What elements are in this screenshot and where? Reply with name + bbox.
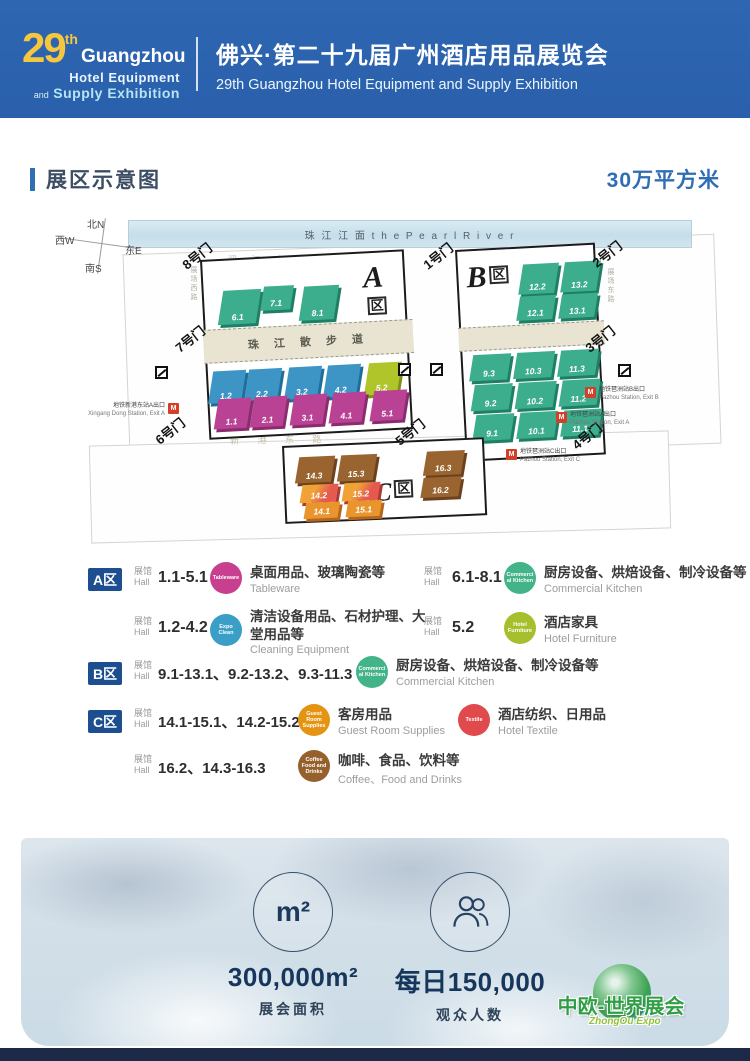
legend-zone-b-badge: B区 xyxy=(88,662,122,685)
hall-9.3: 9.3 xyxy=(469,353,511,381)
hall-10.1: 10.1 xyxy=(516,411,558,439)
hall-14.1: 14.1 xyxy=(304,502,341,520)
legend-category-zh: 桌面用品、玻璃陶瓷等 xyxy=(250,564,385,582)
hall-3.1: 3.1 xyxy=(290,394,328,426)
hall-16.3: 16.3 xyxy=(423,450,465,476)
section-accent-bar xyxy=(30,168,35,191)
expo-clean-icon: Expo Clean xyxy=(210,614,242,646)
legend-range-c2: 16.2、14.3-16.3 xyxy=(158,757,266,778)
hall-6.1: 6.1 xyxy=(218,289,261,325)
compass-south: 南S xyxy=(85,260,102,275)
escalator-icon xyxy=(618,364,631,377)
legend-zone-a-badge: A区 xyxy=(88,568,122,591)
escalator-icon xyxy=(430,363,443,376)
logo-line2: Hotel Equipment xyxy=(22,71,180,84)
hall-12.1: 12.1 xyxy=(516,295,556,321)
metro-icon: M xyxy=(168,403,179,414)
legend-category-en: Coffee、Food and Drinks xyxy=(338,771,462,787)
legend-category-zh: 酒店纺织、日用品 xyxy=(498,706,606,724)
hall-14.3: 14.3 xyxy=(295,456,335,484)
metro-exit-pazhou-c: M 地铁琶洲站C出口Pazhou Station, Exit C xyxy=(506,449,580,465)
hall-8.1: 8.1 xyxy=(299,285,339,321)
legend: A区 展馆Hall 1.1-5.1 Tableware 桌面用品、玻璃陶瓷等 T… xyxy=(0,556,750,808)
legend-range-a1b: 6.1-8.1 xyxy=(452,569,502,587)
logo-and: and xyxy=(34,90,49,100)
hall-9.2: 9.2 xyxy=(471,383,513,411)
logo-city: Guangzhou xyxy=(81,46,185,67)
section-header: 展区示意图 30万平方米 xyxy=(30,164,720,194)
hall-15.1: 15.1 xyxy=(345,500,382,518)
zone-c-block: C区 14.3 15.3 14.2 15.2 14.1 15.1 16.3 16… xyxy=(282,437,487,524)
legend-category-en: Guest Room Supplies xyxy=(338,725,445,737)
hotel-furniture-icon: Hotel Furniture xyxy=(504,612,536,644)
zone-a-block: A区 6.1 7.1 8.1 珠 江 散 步 道 1.2 2.2 3.2 4.2… xyxy=(200,249,413,439)
hall-label: 展馆Hall xyxy=(134,616,152,638)
road-complex-east: 展场东路 xyxy=(605,268,615,304)
header-divider xyxy=(196,37,198,91)
hall-label: 展馆Hall xyxy=(134,566,152,588)
commercial-kitchen-icon: Commercial Kitchen xyxy=(356,656,388,688)
coffee-food-drinks-icon: Coffee Food and Drinks xyxy=(298,750,330,782)
walkway-band-b xyxy=(458,320,605,352)
hall-label: 展馆Hall xyxy=(134,660,152,682)
hall-10.2: 10.2 xyxy=(515,381,557,409)
metro-icon: M xyxy=(506,449,517,460)
legend-zone-c-badge: C区 xyxy=(88,710,122,733)
escalator-icon xyxy=(155,366,168,379)
legend-category-zh: 厨房设备、烘焙设备、制冷设备等 xyxy=(396,657,599,675)
area-m2-icon: m² xyxy=(253,872,333,952)
hall-12.2: 12.2 xyxy=(518,263,559,295)
legend-category-zh: 清洁设备用品、石材护理、大堂用品等 xyxy=(250,608,428,643)
zone-b-label: B区 xyxy=(466,261,510,293)
legend-category-en: Cleaning Equipment xyxy=(250,644,349,656)
textile-icon: Textile xyxy=(458,704,490,736)
exhibition-title-zh: 佛兴·第二十九届广州酒店用品展览会 xyxy=(216,36,750,70)
compass-east: 东E xyxy=(125,242,142,257)
hall-10.3: 10.3 xyxy=(513,351,555,379)
logo-line3: Supply Exhibition xyxy=(53,85,180,101)
section-title: 展区示意图 xyxy=(46,164,161,194)
organizer-logo: 中欧-世界展会 ZhongOu Expo xyxy=(523,964,719,1044)
legend-category-en: Hotel Furniture xyxy=(544,633,617,645)
hall-7.1: 7.1 xyxy=(260,285,294,311)
compass-west: 西W xyxy=(55,232,74,247)
legend-category-en: Tableware xyxy=(250,583,300,595)
tableware-icon: Tableware xyxy=(210,562,242,594)
hall-label: 展馆Hall xyxy=(424,566,442,588)
hall-13.1: 13.1 xyxy=(558,293,598,319)
hall-label: 展馆Hall xyxy=(424,616,442,638)
visitors-icon xyxy=(430,872,510,952)
metro-icon: M xyxy=(556,412,567,423)
legend-range-a2: 1.2-4.2 xyxy=(158,619,208,637)
header-banner: 29thGuangzhou Hotel Equipment and Supply… xyxy=(0,0,750,118)
hall-14.2: 14.2 xyxy=(300,484,339,504)
hall-4.1: 4.1 xyxy=(329,391,367,423)
logo-th: th xyxy=(65,31,78,47)
legend-category-zh: 厨房设备、烘焙设备、制冷设备等 xyxy=(544,564,747,582)
organizer-name-zh: 中欧-世界展会 xyxy=(523,990,719,1019)
escalator-icon xyxy=(398,363,411,376)
commercial-kitchen-icon: Commercial Kitchen xyxy=(504,562,536,594)
legend-category-zh: 咖啡、食品、饮料等 xyxy=(338,752,460,770)
zone-a-label: A区 xyxy=(362,261,405,323)
compass-north: 北N xyxy=(87,216,104,231)
organizer-name-en: ZhongOu Expo xyxy=(589,1016,661,1027)
legend-range-a1: 1.1-5.1 xyxy=(158,569,208,587)
legend-range-a2b: 5.2 xyxy=(452,619,474,637)
legend-category-zh: 酒店家具 xyxy=(544,614,598,632)
hall-label: 展馆Hall xyxy=(134,754,152,776)
exhibition-title-en: 29th Guangzhou Hotel Equipment and Suppl… xyxy=(216,77,750,93)
hall-1.1: 1.1 xyxy=(214,397,252,429)
legend-category-en: Hotel Textile xyxy=(498,725,558,737)
total-area-value: 30万平方米 xyxy=(607,164,720,194)
hall-16.2: 16.2 xyxy=(420,476,461,498)
compass-icon: 北N 西W 东E 南S xyxy=(55,216,147,280)
bottom-bar xyxy=(0,1048,750,1061)
metro-exit-pazhou-b: M 地铁琶洲站B出口Pazhou Station, Exit B xyxy=(585,387,659,403)
hall-label: 展馆Hall xyxy=(134,708,152,730)
hall-15.3: 15.3 xyxy=(337,454,377,482)
hall-5.1: 5.1 xyxy=(369,389,407,421)
expo-logo: 29thGuangzhou Hotel Equipment and Supply… xyxy=(22,27,180,102)
metro-exit-pazhou-a: M 地铁琶洲站A出口Pazhou Station, Exit A xyxy=(556,412,629,428)
legend-category-en: Commercial Kitchen xyxy=(396,676,494,688)
legend-range-b: 9.1-13.1、9.2-13.2、9.3-11.3 xyxy=(158,663,352,684)
hall-2.1: 2.1 xyxy=(250,396,288,428)
hall-15.2: 15.2 xyxy=(342,482,381,502)
legend-category-zh: 客房用品 xyxy=(338,706,392,724)
legend-category-en: Commercial Kitchen xyxy=(544,583,642,595)
metro-exit-xingangdong-a: M 地铁新港东站A出口Xingang Dong Station, Exit A xyxy=(88,403,179,419)
guest-room-supplies-icon: Guest Room Supplies xyxy=(298,704,330,736)
stats-photo-section: m² 300,000m² 展会面积 每日150,000 观众人数 中欧-世界展会… xyxy=(21,838,729,1046)
legend-range-c: 14.1-15.1、14.2-15.2 xyxy=(158,711,300,732)
riverside-walkway: 珠 江 散 步 道 xyxy=(203,319,414,364)
logo-number: 29 xyxy=(22,24,65,71)
metro-icon: M xyxy=(585,387,596,398)
exhibition-map: 珠 江 江 面 t h e P e a r l R i v e r 阅 江 中 … xyxy=(30,206,720,546)
